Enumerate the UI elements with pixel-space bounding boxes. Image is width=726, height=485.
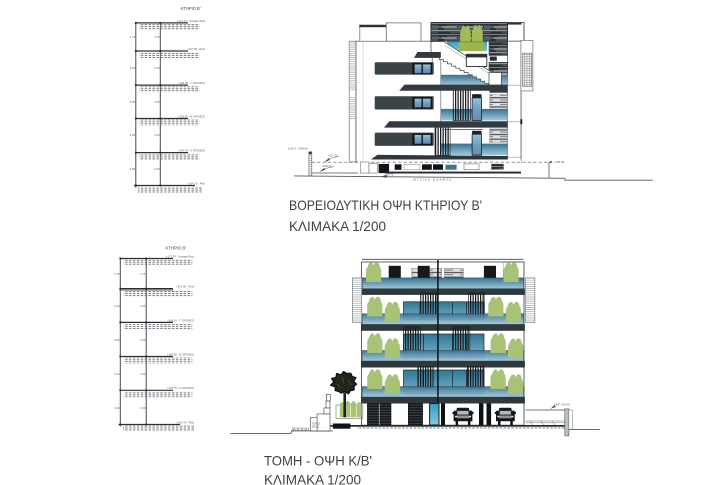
svg-text:+157.30: +157.30 xyxy=(328,153,339,157)
svg-text:+156.40: +156.40 xyxy=(554,160,565,164)
svg-text:ΚΛΙΜΑΚΑ 1/200: ΚΛΙΜΑΚΑ 1/200 xyxy=(264,473,361,485)
svg-text:+167.00 - Roof: +167.00 - Roof xyxy=(176,285,194,289)
svg-text:3.40: 3.40 xyxy=(130,66,136,70)
svg-text:ΔΕΙΓ +56.50: ΔΕΙΓ +56.50 xyxy=(554,402,570,406)
svg-text:+157.75 - Α' ΟΡΟΦΟΣ: +157.75 - Α' ΟΡΟΦΟΣ xyxy=(167,386,194,390)
svg-text:ΒΟΡΕΙΟΔΥΤΙΚΗ ΟΨΗ ΚΤΗΡΙΟΥ Β': ΒΟΡΕΙΟΔΥΤΙΚΗ ΟΨΗ ΚΤΗΡΙΟΥ Β' xyxy=(289,198,482,213)
svg-text:3.35: 3.35 xyxy=(140,338,146,342)
svg-text:3.30: 3.30 xyxy=(154,167,160,171)
svg-text:3.40: 3.40 xyxy=(114,304,120,308)
svg-text:3.40: 3.40 xyxy=(154,66,160,70)
svg-text:80.75: 80.75 xyxy=(387,173,394,177)
svg-text:3.40: 3.40 xyxy=(140,304,146,308)
svg-text:Δ.Φ.Ο. +158.50: Δ.Φ.Ο. +158.50 xyxy=(288,147,308,151)
svg-text:+154.75 - Pilot: +154.75 - Pilot xyxy=(188,181,206,185)
svg-text:ΕΙΣΟΔ: ΕΙΣΟΔ xyxy=(312,425,320,428)
svg-text:ΤΟΜΗ - ΟΨΗ Κ/Β': ΤΟΜΗ - ΟΨΗ Κ/Β' xyxy=(264,454,372,469)
svg-text:+157.75 - Α' ΟΡΟΦΟΣ: +157.75 - Α' ΟΡΟΦΟΣ xyxy=(178,149,205,153)
svg-text:3.40: 3.40 xyxy=(114,372,120,376)
svg-text:3.35: 3.35 xyxy=(154,100,160,104)
svg-text:+164.25 - Γ' ΟΡΟΦΟΣ: +164.25 - Γ' ΟΡΟΦΟΣ xyxy=(178,81,205,85)
svg-text:3.30: 3.30 xyxy=(130,167,136,171)
svg-text:+164.10 - Γ' ΟΡΟΦΟΣ: +164.10 - Γ' ΟΡΟΦΟΣ xyxy=(167,318,194,322)
svg-text:+160.95 - Β' ΟΡΟΦΟΣ: +160.95 - Β' ΟΡΟΦΟΣ xyxy=(167,352,194,356)
svg-text:3.30: 3.30 xyxy=(140,406,146,410)
svg-text:ΚΛΙΜΑΚΑ 1/200: ΚΛΙΜΑΚΑ 1/200 xyxy=(289,219,386,234)
svg-text:2.75: 2.75 xyxy=(140,272,146,276)
svg-text:2.75: 2.75 xyxy=(154,35,160,39)
svg-text:2.75: 2.75 xyxy=(114,272,120,276)
svg-text:ΦΥΣΙΚΟ ΕΔΑΦΟΣ: ΦΥΣΙΚΟ ΕΔΑΦΟΣ xyxy=(414,178,453,182)
svg-text:+154.75 - Pilot: +154.75 - Pilot xyxy=(177,420,195,424)
svg-text:3.40: 3.40 xyxy=(140,372,146,376)
svg-text:3.35: 3.35 xyxy=(130,100,136,104)
svg-text:+171.70 - Storage Roof: +171.70 - Storage Roof xyxy=(177,19,205,23)
svg-text:3.40: 3.40 xyxy=(154,133,160,137)
svg-text:+161.50 - Β' ΟΡΟΦΟΣ: +161.50 - Β' ΟΡΟΦΟΣ xyxy=(178,114,205,118)
svg-text:ΚΤΗΡΙΟ Β': ΚΤΗΡΙΟ Β' xyxy=(181,6,201,12)
svg-text:+156.20: +156.20 xyxy=(322,164,333,168)
svg-text:3.40: 3.40 xyxy=(130,133,136,137)
svg-text:+171.70 - Storage Roof: +171.70 - Storage Roof xyxy=(166,254,194,258)
svg-text:3.30: 3.30 xyxy=(114,406,120,410)
svg-text:3.35: 3.35 xyxy=(114,338,120,342)
svg-text:2.75: 2.75 xyxy=(130,35,136,39)
svg-text:ΚΤΗΡΙΟ Β': ΚΤΗΡΙΟ Β' xyxy=(166,246,187,252)
svg-text:+167.00 - Roof: +167.00 - Roof xyxy=(187,47,205,51)
